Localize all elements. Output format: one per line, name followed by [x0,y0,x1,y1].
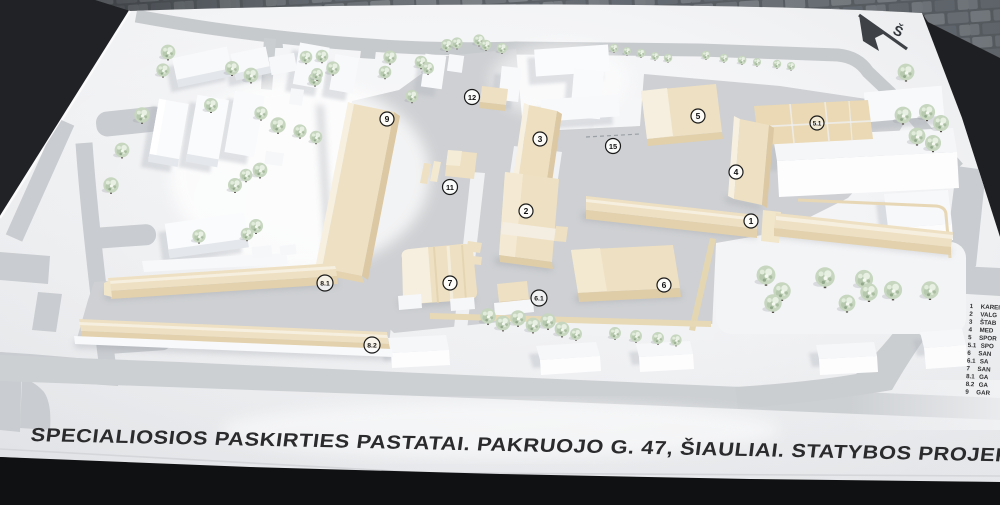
svg-text:9: 9 [385,114,390,124]
svg-text:ŠTAB: ŠTAB [980,318,997,327]
svg-text:8.2: 8.2 [367,343,377,350]
svg-text:6.1: 6.1 [534,296,544,303]
svg-text:2: 2 [524,206,529,216]
svg-text:7: 7 [448,278,453,288]
svg-text:SAN: SAN [977,366,991,374]
svg-text:SA: SA [980,358,989,365]
svg-text:5.1: 5.1 [968,342,978,349]
svg-text:5: 5 [696,111,701,121]
svg-text:6.1: 6.1 [967,358,977,365]
svg-text:11: 11 [446,183,454,192]
svg-text:SPO: SPO [981,343,995,351]
svg-text:4: 4 [734,167,739,177]
svg-text:VALG: VALG [980,311,997,319]
svg-text:SPOR: SPOR [979,335,997,343]
svg-text:3: 3 [538,134,543,144]
svg-text:GAR: GAR [976,389,991,397]
svg-text:8.1: 8.1 [320,281,330,288]
svg-text:GA: GA [978,382,988,390]
svg-text:15: 15 [609,142,617,151]
svg-text:8.2: 8.2 [965,381,975,388]
svg-text:6: 6 [662,280,667,290]
svg-text:8.1: 8.1 [966,373,976,380]
svg-text:1: 1 [749,216,754,226]
svg-text:SAN: SAN [978,350,992,358]
svg-text:5.1: 5.1 [813,120,822,127]
svg-text:GA: GA [979,374,989,382]
svg-text:12: 12 [468,93,476,102]
svg-text:MED: MED [979,327,994,335]
